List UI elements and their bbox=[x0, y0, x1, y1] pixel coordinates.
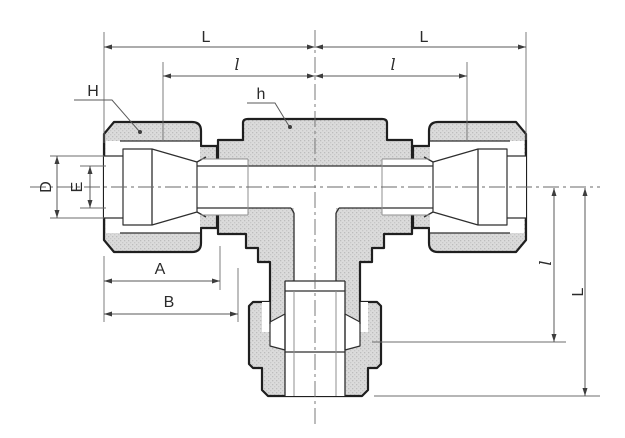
arrowhead bbox=[163, 74, 171, 79]
arrowhead bbox=[104, 279, 112, 284]
dim-A: A bbox=[104, 246, 220, 322]
arrowhead bbox=[104, 45, 112, 50]
arrowhead bbox=[104, 312, 112, 317]
arrowhead bbox=[315, 45, 323, 50]
dim-label-L-left: L bbox=[202, 29, 211, 46]
drawing-canvas: L L l l H h D bbox=[0, 0, 625, 438]
tee-fitting-drawing: L L l l H h D bbox=[0, 0, 625, 438]
label-H: H bbox=[87, 83, 99, 100]
dim-label-A: A bbox=[155, 261, 166, 278]
arrowhead bbox=[583, 188, 588, 196]
label-h: h bbox=[257, 86, 266, 103]
dim-B: B bbox=[104, 268, 238, 322]
branch-bore bbox=[294, 208, 336, 281]
dim-label-L-right: L bbox=[420, 29, 429, 46]
leader-dot bbox=[138, 130, 142, 134]
arrowhead bbox=[55, 156, 60, 164]
arrowhead bbox=[518, 45, 526, 50]
arrowhead bbox=[88, 166, 93, 174]
arrowhead bbox=[583, 388, 588, 396]
dim-label-E: E bbox=[69, 182, 86, 193]
arrowhead bbox=[307, 74, 315, 79]
arrowhead bbox=[88, 200, 93, 208]
dim-label-D: D bbox=[38, 181, 55, 193]
dim-label-l-vertical: l bbox=[536, 260, 555, 265]
arrowhead bbox=[212, 279, 220, 284]
dim-label-L-vertical: L bbox=[570, 287, 587, 296]
arrowhead bbox=[307, 45, 315, 50]
dim-label-B: B bbox=[164, 294, 175, 311]
bottom-thread-gap-right bbox=[360, 302, 368, 332]
leader-dot bbox=[288, 125, 292, 129]
arrowhead bbox=[230, 312, 238, 317]
arrowhead bbox=[552, 334, 557, 342]
bottom-thread-gap-left bbox=[262, 302, 270, 332]
dim-label-l-right: l bbox=[390, 55, 395, 74]
arrowhead bbox=[315, 74, 323, 79]
arrowhead bbox=[459, 74, 467, 79]
arrowhead bbox=[552, 188, 557, 196]
arrowhead bbox=[55, 210, 60, 218]
dim-label-l-left: l bbox=[234, 55, 239, 74]
